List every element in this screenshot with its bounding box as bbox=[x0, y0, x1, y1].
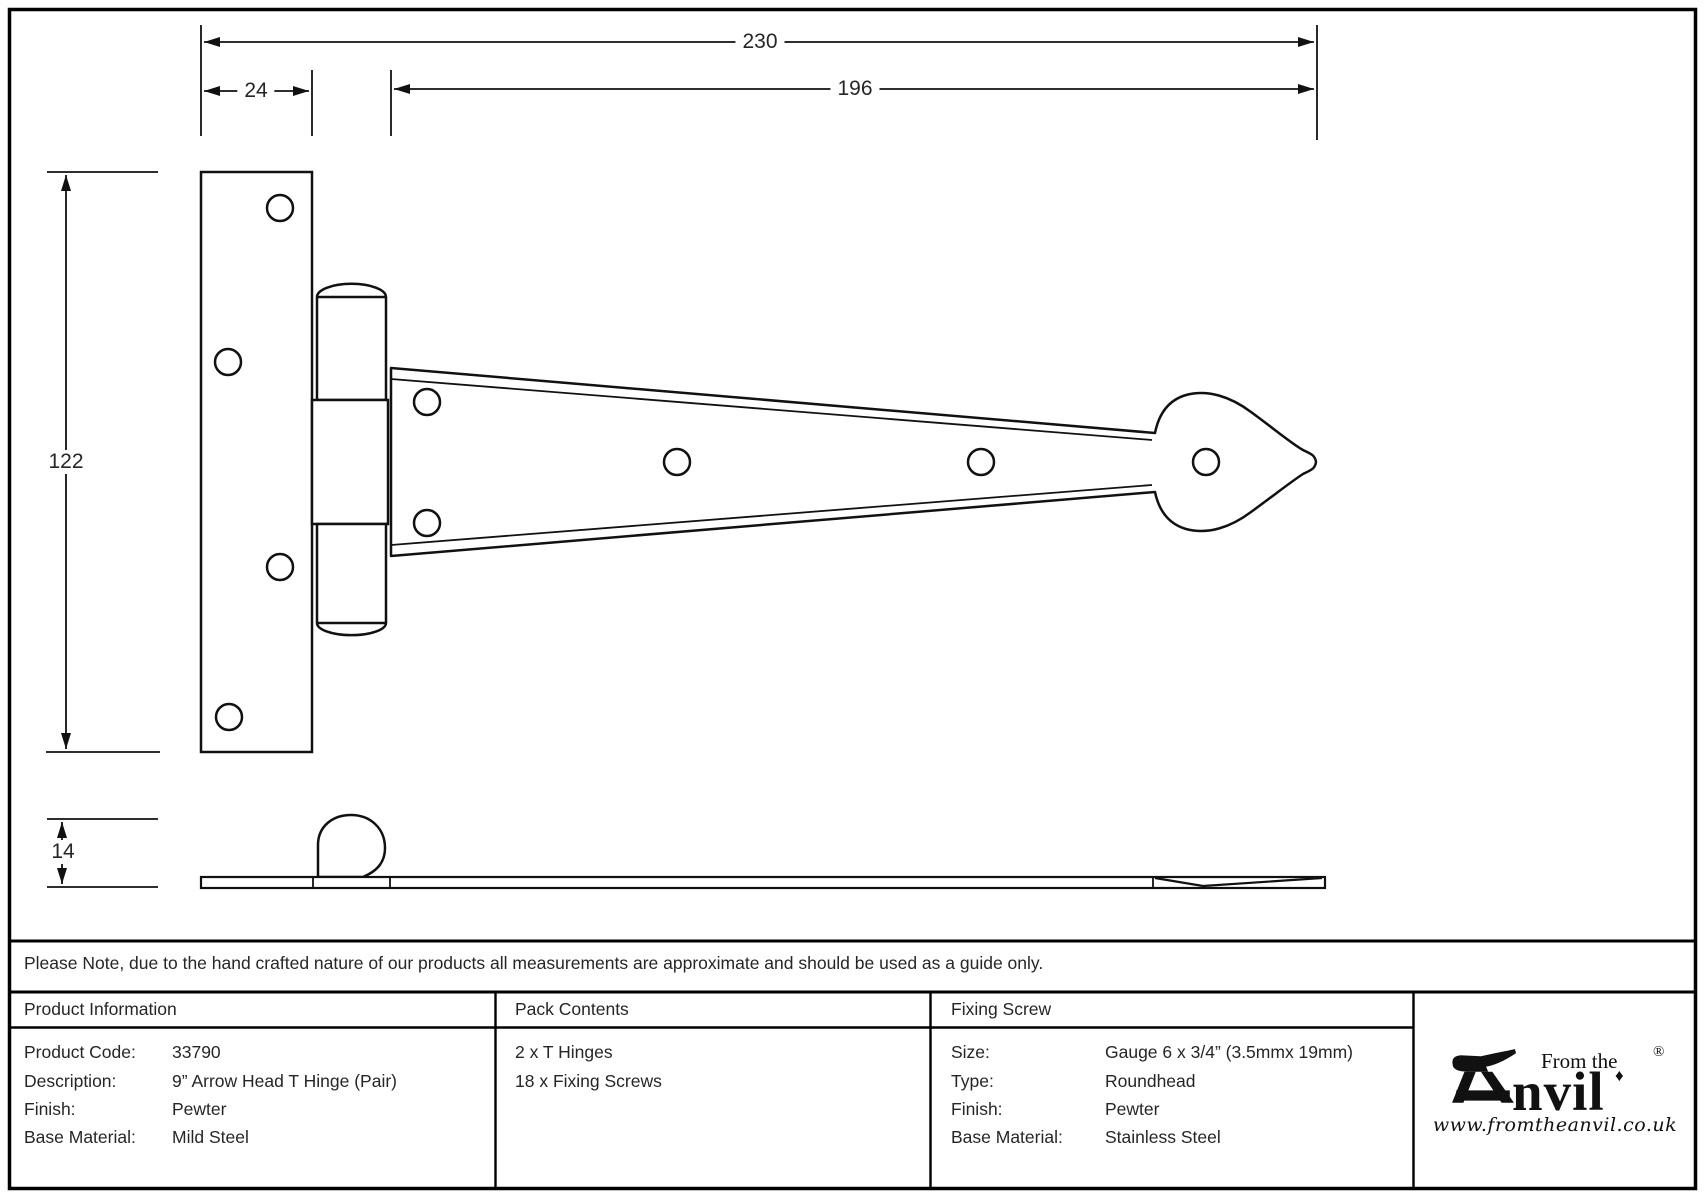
screw-hole bbox=[664, 449, 690, 475]
screw-hole bbox=[215, 349, 241, 375]
screw-hole bbox=[1193, 449, 1219, 475]
screw-size-value: Gauge 6 x 3/4” (3.5mmx 19mm) bbox=[1105, 1042, 1353, 1063]
screw-finish-value: Pewter bbox=[1105, 1099, 1159, 1120]
base-material-label: Base Material: bbox=[24, 1127, 136, 1148]
dim-label-strap-length: 196 bbox=[830, 77, 879, 101]
screw-base-material-label: Base Material: bbox=[951, 1127, 1063, 1148]
barrel-knob-profile bbox=[318, 815, 385, 877]
screw-hole bbox=[414, 510, 440, 536]
spec-sheet: { "sheet": { "note": "Please Note, due t… bbox=[0, 0, 1705, 1198]
description-label: Description: bbox=[24, 1071, 116, 1092]
registered-trademark-icon: ® bbox=[1653, 1044, 1664, 1061]
dim-label-thickness: 14 bbox=[44, 840, 81, 864]
base-material-value: Mild Steel bbox=[172, 1127, 249, 1148]
screw-base-material-value: Stainless Steel bbox=[1105, 1127, 1221, 1148]
screw-hole bbox=[267, 554, 293, 580]
logo-name-text: nvil bbox=[1512, 1064, 1605, 1119]
knuckle-top-segment bbox=[317, 284, 386, 400]
screw-hole bbox=[968, 449, 994, 475]
screw-size-label: Size: bbox=[951, 1042, 990, 1063]
logo-website-text: www.fromtheanvil.co.uk bbox=[1413, 1114, 1697, 1136]
product-code-value: 33790 bbox=[172, 1042, 221, 1063]
product-code-label: Product Code: bbox=[24, 1042, 136, 1063]
product-information-header: Product Information bbox=[24, 999, 177, 1020]
finish-label: Finish: bbox=[24, 1099, 76, 1120]
logo-diamond-icon: ♦ bbox=[1615, 1066, 1624, 1086]
pack-contents-header: Pack Contents bbox=[515, 999, 629, 1020]
dim-label-plate-width: 24 bbox=[237, 79, 274, 103]
screw-type-label: Type: bbox=[951, 1071, 994, 1092]
screw-hole bbox=[414, 389, 440, 415]
screw-finish-label: Finish: bbox=[951, 1099, 1003, 1120]
anvil-icon bbox=[1450, 1048, 1516, 1112]
knuckle-bottom-segment bbox=[317, 524, 386, 635]
pack-contents-item: 2 x T Hinges bbox=[515, 1042, 613, 1063]
screw-type-value: Roundhead bbox=[1105, 1071, 1196, 1092]
screw-hole bbox=[216, 704, 242, 730]
pack-contents-item: 18 x Fixing Screws bbox=[515, 1071, 662, 1092]
screw-hole bbox=[267, 195, 293, 221]
hinge-knuckle bbox=[312, 284, 388, 635]
hinge-side-view bbox=[201, 815, 1325, 888]
measurement-note: Please Note, due to the hand crafted nat… bbox=[24, 953, 1043, 974]
finish-value: Pewter bbox=[172, 1099, 226, 1120]
hinge-plate bbox=[201, 172, 312, 752]
fixing-screw-header: Fixing Screw bbox=[951, 999, 1051, 1020]
description-value: 9” Arrow Head T Hinge (Pair) bbox=[172, 1071, 397, 1092]
dim-label-overall-length: 230 bbox=[735, 30, 784, 54]
knuckle-middle-segment bbox=[312, 400, 388, 524]
strap-outline bbox=[391, 368, 1316, 556]
dim-label-plate-height: 122 bbox=[41, 450, 90, 474]
hinge-front-view bbox=[201, 172, 1316, 752]
technical-drawing-canvas bbox=[0, 0, 1705, 1198]
